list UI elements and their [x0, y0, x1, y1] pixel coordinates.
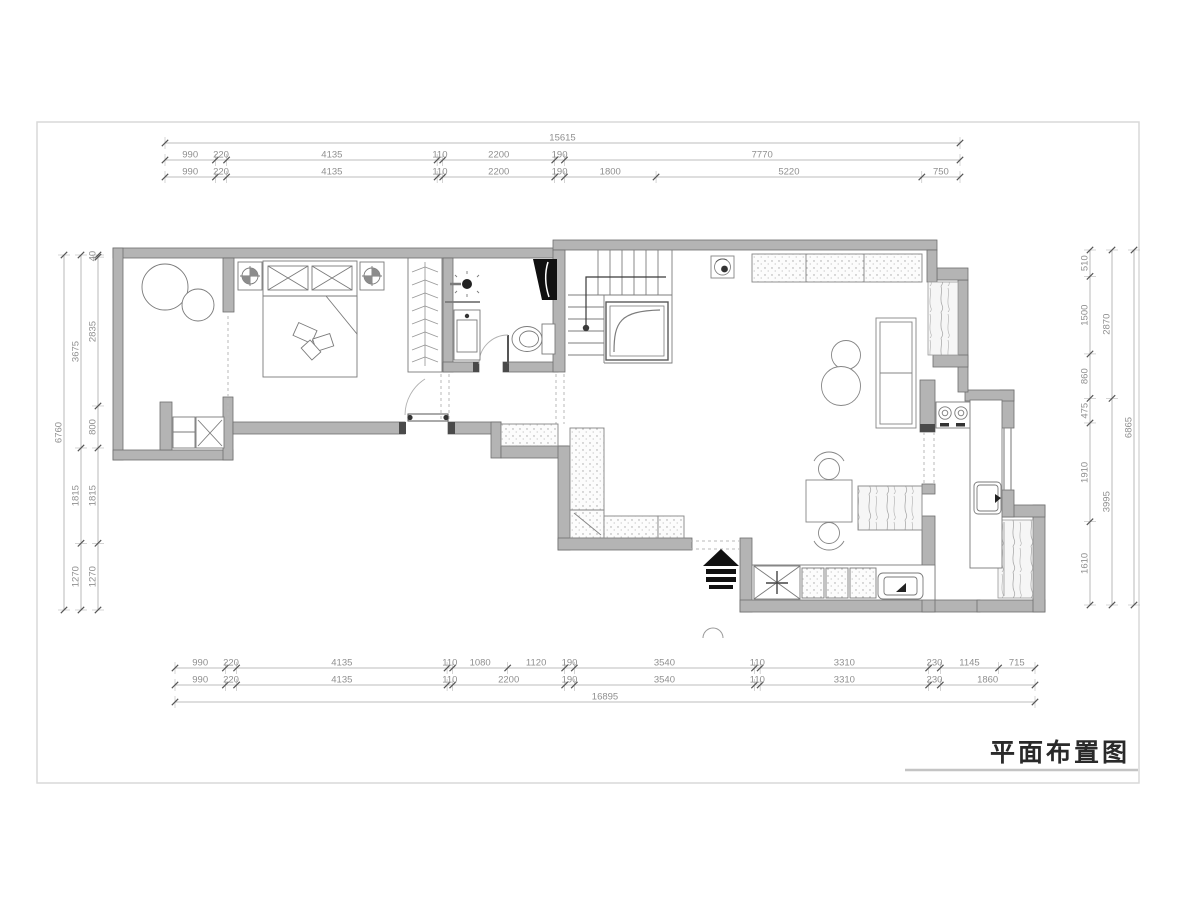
toilet [512, 324, 555, 354]
dim-label: 1270 [88, 566, 99, 587]
plant [754, 566, 800, 599]
dim-label: 2835 [88, 321, 99, 342]
dim-label: 475 [1080, 403, 1091, 419]
dim-label: 1860 [977, 675, 998, 686]
dim-label: 110 [432, 150, 447, 161]
dim-label: 990 [192, 675, 208, 686]
dim-label: 3995 [1102, 491, 1113, 512]
dim-label: 3540 [654, 658, 675, 669]
dim-label: 6865 [1124, 417, 1135, 438]
entry-arrow [703, 549, 739, 589]
dim-label: 190 [562, 675, 578, 686]
dim-label: 7770 [752, 150, 773, 161]
dim-label: 190 [562, 658, 578, 669]
dim-label: 4135 [321, 167, 342, 178]
window-seat [501, 424, 558, 446]
dim-label: 2870 [1102, 314, 1113, 335]
dim-label: 190 [552, 167, 568, 178]
dim-label: 1815 [88, 485, 99, 506]
tv-cabinet [876, 318, 916, 428]
dining-set [806, 452, 852, 550]
coffee-table-small [832, 341, 861, 370]
bay-window-glass [998, 520, 1033, 598]
dim-label: 4135 [321, 150, 342, 161]
dim-label: 220 [213, 167, 229, 178]
kitchen-sink [974, 482, 1001, 514]
dim-label: 2200 [488, 150, 509, 161]
dim-label: 5220 [778, 167, 799, 178]
dim-label: 220 [223, 658, 239, 669]
dim-label: 220 [213, 150, 229, 161]
dim-label: 110 [442, 675, 457, 686]
furniture-bathroom [445, 271, 555, 360]
dim-label: 3540 [654, 675, 675, 686]
wall-bench [752, 254, 922, 282]
dim-label: 3310 [834, 675, 855, 686]
coffee-table-large [822, 367, 861, 406]
dim-label: 1610 [1080, 553, 1091, 574]
floorplan-page: 1561599022041351102200190777099022041351… [0, 0, 1200, 900]
dim-label: 990 [192, 658, 208, 669]
dim-label: 230 [927, 675, 943, 686]
doorbell-arc [703, 628, 723, 638]
dim-label: 230 [927, 658, 943, 669]
lounge-chair-large [142, 264, 188, 310]
dim-label: 860 [1080, 368, 1091, 384]
dim-label: 110 [442, 658, 457, 669]
dim-label: 1500 [1080, 305, 1091, 326]
living-window-glass [928, 282, 958, 355]
dim-label: 2200 [498, 675, 519, 686]
dim-label: 2200 [488, 167, 509, 178]
vent-shaft [533, 259, 557, 300]
dim-label: 6760 [54, 422, 65, 443]
dim-label: 1910 [1080, 462, 1091, 483]
dim-label: 750 [933, 167, 949, 178]
second-sink [878, 573, 923, 599]
kitchen-window [1004, 428, 1011, 490]
dim-label: 40 [88, 251, 99, 262]
l-sofa [570, 428, 684, 538]
dim-label: 110 [432, 167, 447, 178]
dim-label: 15615 [549, 133, 575, 144]
dim-label: 110 [750, 675, 765, 686]
dim-label: 1145 [959, 658, 979, 669]
dim-label: 1120 [526, 658, 546, 669]
wardrobe [408, 258, 442, 372]
dim-label: 220 [223, 675, 239, 686]
dim-label: 1800 [600, 167, 621, 178]
dim-label: 990 [182, 167, 198, 178]
dim-label: 3310 [834, 658, 855, 669]
double-bed [263, 261, 357, 377]
shower-head-icon [450, 271, 479, 297]
dim-label: 3675 [71, 341, 82, 362]
dim-label: 16895 [592, 692, 618, 703]
furniture-bedroom [142, 258, 442, 448]
bedroom-door [405, 379, 449, 421]
dim-label: 110 [750, 658, 765, 669]
dim-label: 1815 [71, 485, 82, 506]
dim-label: 4135 [331, 675, 352, 686]
vanity-sink [454, 310, 480, 360]
laundry-cabinet [173, 417, 195, 448]
dim-label: 715 [1009, 658, 1025, 669]
stove [936, 402, 971, 428]
drawing-title: 平面布置图 [980, 733, 1140, 769]
dim-label: 190 [552, 150, 568, 161]
dim-label: 1270 [71, 566, 82, 587]
bathroom-door [479, 335, 508, 364]
lounge-chair-small [182, 289, 214, 321]
speaker-icon [711, 256, 734, 278]
sideboard [858, 486, 922, 530]
stairs [568, 250, 672, 363]
dim-label: 1080 [470, 658, 491, 669]
dim-label: 800 [88, 419, 99, 435]
dim-label: 510 [1080, 255, 1091, 271]
dim-label: 990 [182, 150, 198, 161]
dim-label: 4135 [331, 658, 352, 669]
